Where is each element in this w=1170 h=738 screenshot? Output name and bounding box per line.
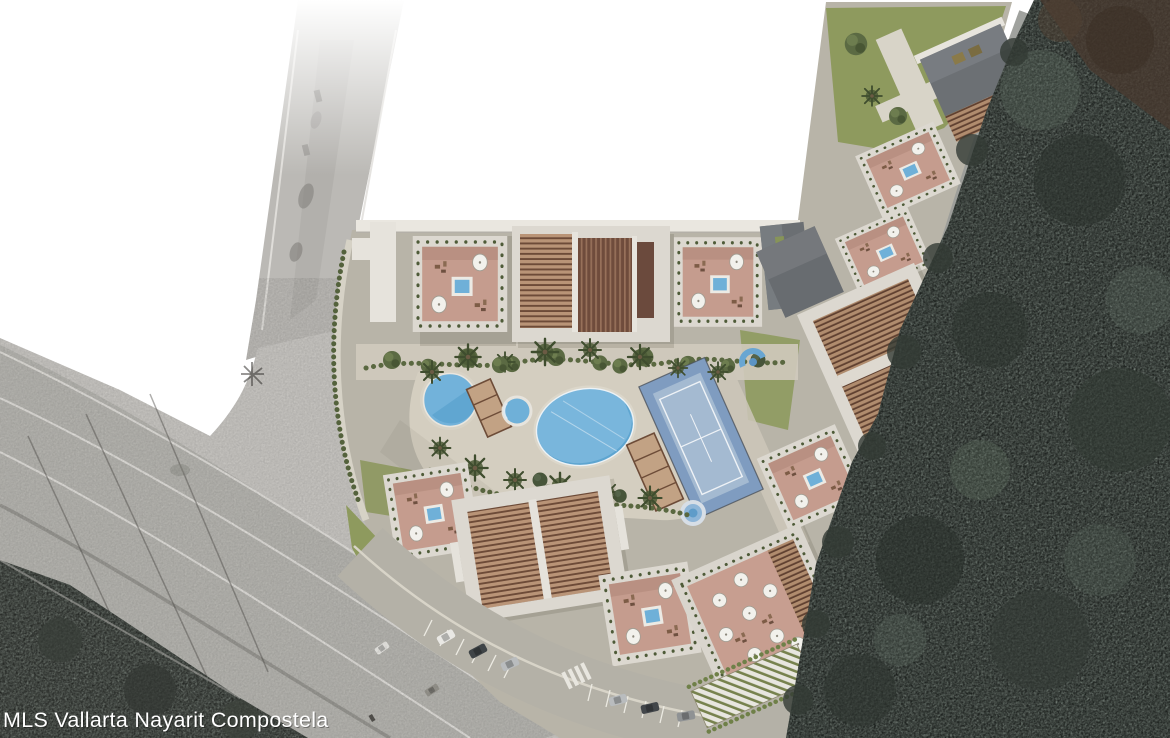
rooftop-terrace-2 [674, 237, 762, 327]
kids-pool [502, 396, 533, 427]
rooftop-terrace-1 [413, 236, 508, 332]
photo-top-fade [230, 0, 420, 175]
round-spa [680, 500, 706, 526]
aerial-site-plan-image: MLS Vallarta Nayarit Compostela MLS Vall… [0, 0, 1170, 738]
watermark-text: MLS Vallarta Nayarit Compostela [3, 708, 329, 732]
watermark: MLS Vallarta Nayarit Compostela MLS Vall… [3, 708, 330, 733]
pergola-building-north [512, 226, 674, 348]
